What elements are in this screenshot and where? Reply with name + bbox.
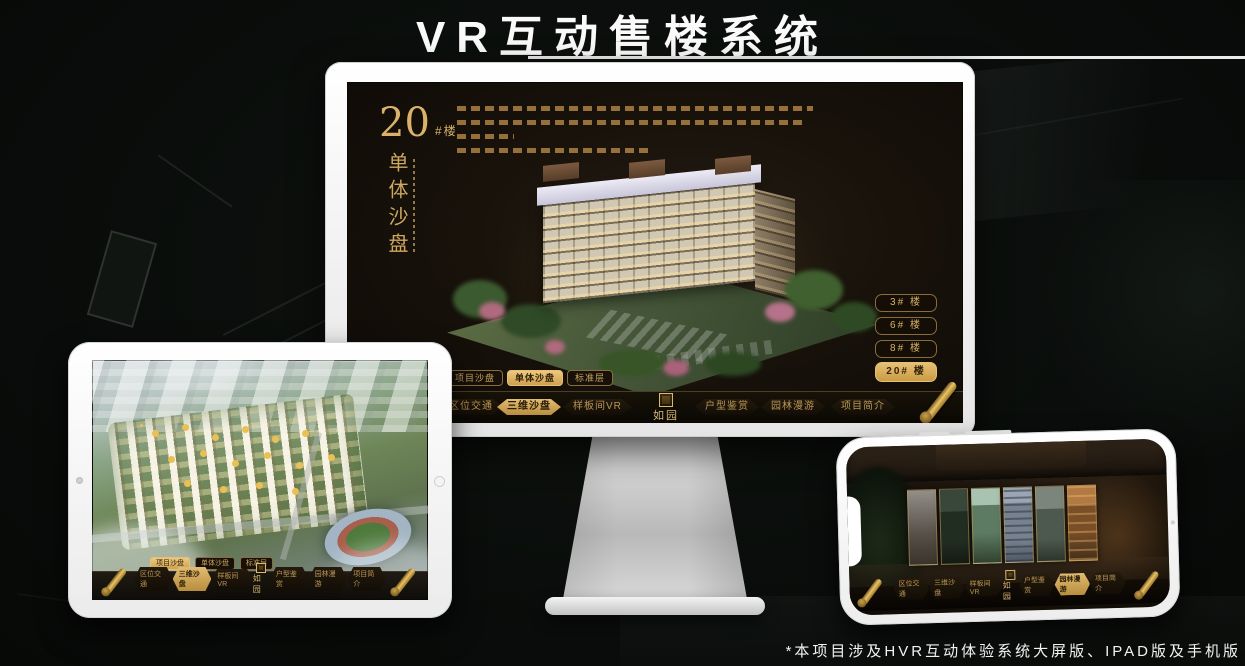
floor-button-3[interactable]: 3# 楼 bbox=[875, 294, 937, 312]
map-plot-frame bbox=[87, 230, 157, 328]
floor-button-20-active[interactable]: 20# 楼 bbox=[875, 362, 937, 382]
phone-screen: 区位交通 三维沙盘 样板间VR 如园 户型鉴赏 园林漫游 项目简介 bbox=[846, 439, 1171, 616]
monitor-base bbox=[545, 597, 765, 615]
gallery-panel[interactable] bbox=[971, 487, 1002, 564]
tree bbox=[705, 352, 761, 376]
ipad-device: 项目沙盘 单体沙盘 标准层 区位交通 三维沙盘 样板间VR 如园 户型鉴赏 园林… bbox=[68, 342, 452, 618]
stage: VR互动售楼系统 20 #楼 单体沙盘 bbox=[0, 0, 1245, 666]
phone-notch bbox=[846, 496, 862, 566]
blossom-tree bbox=[663, 360, 689, 376]
tab-project-sandbox[interactable]: 项目沙盘 bbox=[447, 370, 503, 386]
tab-standard-floor[interactable]: 标准层 bbox=[567, 370, 613, 386]
nav-item-unit-plans[interactable]: 户型鉴赏 bbox=[695, 399, 759, 415]
phone-side-button bbox=[919, 432, 949, 437]
tree bbox=[785, 270, 843, 310]
tab-single-sandbox[interactable]: 单体沙盘 bbox=[507, 370, 563, 386]
nav-item-garden-tour[interactable]: 园林漫游 bbox=[309, 567, 348, 591]
gallery-panel[interactable] bbox=[939, 488, 970, 565]
scroll-menu-icon[interactable] bbox=[923, 380, 958, 422]
gallery-panel[interactable] bbox=[907, 489, 938, 566]
vertical-subtitle-decoration bbox=[413, 156, 415, 252]
nav-item-unit-plans[interactable]: 户型鉴赏 bbox=[1019, 574, 1055, 597]
description-line bbox=[457, 106, 813, 111]
nav-item-project-intro[interactable]: 项目简介 bbox=[347, 567, 386, 591]
gallery-panel[interactable] bbox=[1067, 485, 1098, 562]
logo-text: 如园 bbox=[253, 573, 270, 595]
nav-item-3d-sandbox[interactable]: 三维沙盘 bbox=[173, 567, 212, 591]
nav-item-location[interactable]: 区位交通 bbox=[134, 567, 173, 591]
ipad-camera-icon bbox=[76, 477, 83, 484]
gallery-panel[interactable] bbox=[1003, 486, 1034, 563]
footnote-text: *本项目涉及HVR互动体验系统大屏版、IPAD版及手机版 bbox=[786, 640, 1241, 661]
ipad-home-button[interactable] bbox=[434, 476, 445, 487]
scroll-menu-icon[interactable] bbox=[393, 567, 417, 595]
building-render bbox=[447, 152, 877, 402]
title-underline bbox=[528, 56, 1245, 59]
tree bbox=[831, 302, 877, 332]
nav-item-project-intro[interactable]: 项目简介 bbox=[831, 399, 895, 415]
block-number: 20 bbox=[379, 100, 430, 146]
phone-camera-icon bbox=[1171, 520, 1175, 524]
blossom-tree bbox=[479, 302, 505, 320]
block-unit: #楼 bbox=[435, 122, 458, 139]
logo-seal-icon bbox=[1005, 570, 1015, 580]
monitor-stand bbox=[563, 436, 747, 599]
building-number-markers bbox=[140, 424, 143, 427]
background-glow bbox=[1035, 180, 1245, 460]
blossom-tree bbox=[765, 302, 795, 322]
nav-item-project-intro[interactable]: 项目简介 bbox=[1090, 572, 1126, 595]
logo-text: 如园 bbox=[1003, 580, 1020, 602]
scroll-menu-icon[interactable] bbox=[104, 567, 128, 595]
logo-text: 如园 bbox=[653, 407, 679, 423]
monitor-stand-shade bbox=[563, 436, 747, 599]
interior-beam bbox=[936, 441, 1087, 471]
nav-item-showroom-vr[interactable]: 样板间VR bbox=[964, 577, 1003, 597]
brand-logo[interactable]: 如园 bbox=[1002, 570, 1019, 602]
floor-button-8[interactable]: 8# 楼 bbox=[875, 340, 937, 358]
gallery-panel[interactable] bbox=[1035, 485, 1066, 562]
nav-item-location[interactable]: 区位交通 bbox=[893, 577, 929, 600]
ipad-screen: 项目沙盘 单体沙盘 标准层 区位交通 三维沙盘 样板间VR 如园 户型鉴赏 园林… bbox=[92, 360, 428, 600]
ipad-bottom-navbar: 区位交通 三维沙盘 样板间VR 如园 户型鉴赏 园林漫游 项目简介 bbox=[92, 571, 428, 600]
brand-logo[interactable]: 如园 bbox=[653, 393, 679, 423]
nav-item-garden-tour[interactable]: 园林漫游 bbox=[761, 399, 825, 415]
ipad-nav-items: 区位交通 三维沙盘 样板间VR 如园 户型鉴赏 园林漫游 项目简介 bbox=[134, 563, 386, 595]
logo-seal-icon bbox=[256, 563, 266, 573]
map-road-line bbox=[158, 154, 233, 207]
nav-item-unit-plans[interactable]: 户型鉴赏 bbox=[270, 567, 309, 591]
description-line bbox=[457, 134, 514, 139]
nav-item-garden-tour[interactable]: 园林漫游 bbox=[1054, 573, 1090, 596]
nav-item-showroom-vr[interactable]: 样板间VR bbox=[563, 399, 632, 415]
phone-nav-items: 区位交通 三维沙盘 样板间VR 如园 户型鉴赏 园林漫游 项目简介 bbox=[893, 567, 1126, 605]
floor-button-6[interactable]: 6# 楼 bbox=[875, 317, 937, 335]
brand-logo[interactable]: 如园 bbox=[253, 563, 270, 595]
nav-item-3d-sandbox[interactable]: 三维沙盘 bbox=[929, 576, 965, 599]
nav-item-showroom-vr[interactable]: 样板间VR bbox=[211, 569, 252, 590]
section-title-vertical: 单体沙盘 bbox=[383, 152, 412, 260]
phone-device: 区位交通 三维沙盘 样板间VR 如园 户型鉴赏 园林漫游 项目简介 bbox=[835, 428, 1180, 625]
tree bbox=[501, 304, 561, 338]
description-line bbox=[457, 120, 806, 125]
nav-item-3d-sandbox[interactable]: 三维沙盘 bbox=[497, 399, 561, 415]
logo-seal-icon bbox=[659, 393, 673, 407]
phone-side-button bbox=[965, 430, 1011, 435]
blossom-tree bbox=[545, 340, 565, 354]
